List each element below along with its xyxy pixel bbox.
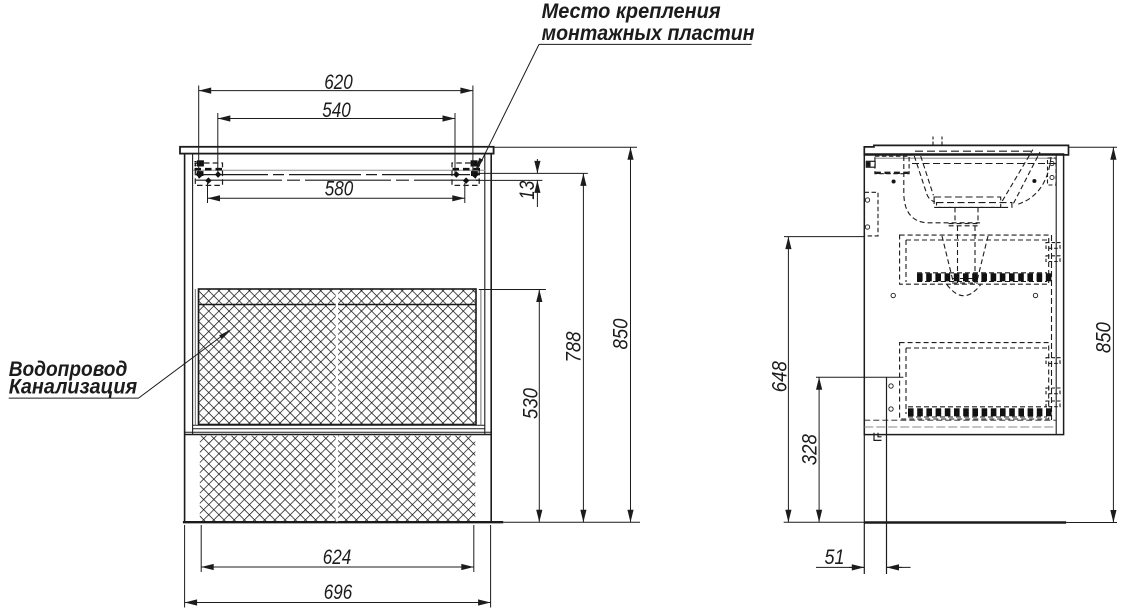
svg-text:696: 696 [324,581,353,604]
svg-text:648: 648 [768,361,791,392]
svg-text:580: 580 [325,178,354,201]
svg-text:540: 540 [322,99,351,122]
svg-text:монтажных пластин: монтажных пластин [542,22,755,45]
svg-text:328: 328 [798,434,821,465]
svg-text:Место крепления: Место крепления [542,0,721,23]
svg-text:850: 850 [610,318,633,349]
svg-text:51: 51 [825,546,845,569]
svg-text:13: 13 [516,181,539,200]
svg-text:530: 530 [520,388,543,419]
svg-text:624: 624 [323,546,352,569]
svg-text:850: 850 [1092,322,1115,353]
svg-text:788: 788 [563,331,586,362]
svg-text:Канализация: Канализация [9,375,138,398]
svg-text:620: 620 [324,71,353,94]
